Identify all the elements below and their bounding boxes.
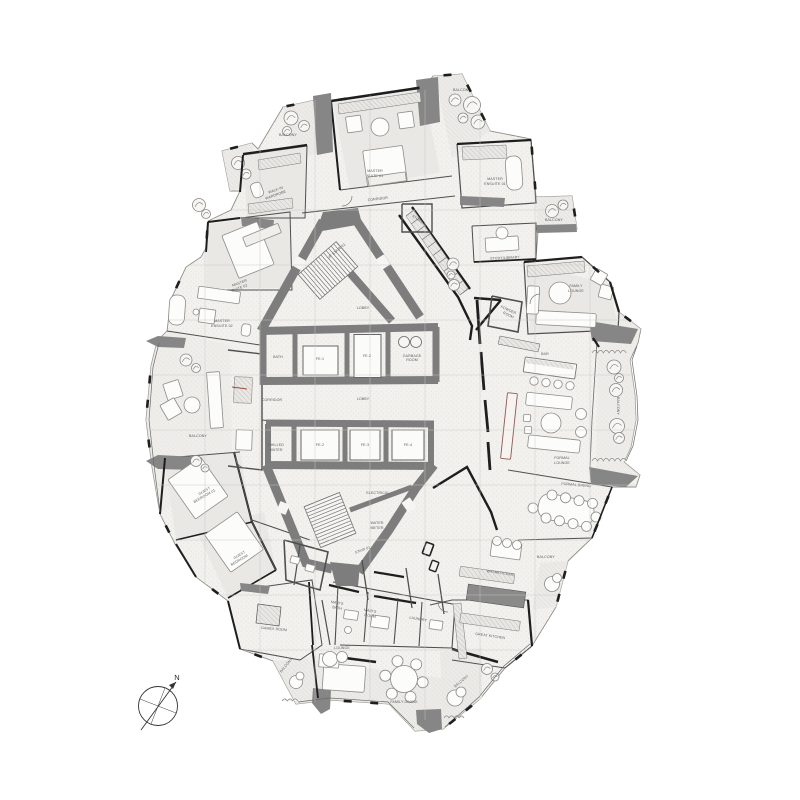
svg-text:WATER: WATER [370,521,383,525]
svg-text:FE-3: FE-3 [361,443,369,447]
svg-text:FE-2: FE-2 [316,443,324,447]
svg-text:BAR: BAR [541,352,549,356]
svg-text:MASTER: MASTER [487,177,503,181]
svg-text:CHILLED: CHILLED [268,443,284,447]
svg-text:SUITE 01: SUITE 01 [367,174,383,178]
svg-text:FE-4: FE-4 [404,443,412,447]
svg-text:N: N [174,673,180,682]
svg-text:BALCONY: BALCONY [616,397,620,415]
svg-text:BALCONY: BALCONY [537,555,555,559]
svg-text:FAMILY: FAMILY [569,284,583,288]
svg-text:BALCONY: BALCONY [189,434,207,438]
svg-text:BATH: BATH [273,355,283,359]
svg-text:FE-2: FE-2 [363,354,371,358]
svg-text:LOUNGE: LOUNGE [554,461,570,465]
svg-text:ENSUITE 01: ENSUITE 01 [484,182,506,186]
svg-text:CORRIDOR: CORRIDOR [262,398,283,402]
svg-text:MASTER: MASTER [367,169,383,173]
svg-text:FE-1: FE-1 [316,357,324,361]
svg-text:LOUNGE: LOUNGE [334,646,350,650]
svg-text:BALCONY: BALCONY [279,133,297,137]
svg-text:FORMAL: FORMAL [554,456,570,460]
svg-text:ELECTRICAL: ELECTRICAL [366,491,389,495]
svg-text:BALCONY: BALCONY [545,218,563,222]
svg-text:METER: METER [370,526,383,530]
svg-text:WATER: WATER [269,448,282,452]
svg-text:MASTER: MASTER [214,319,230,323]
svg-text:LOBBY: LOBBY [357,306,370,310]
svg-text:FAMILY DINING: FAMILY DINING [390,700,417,704]
svg-text:LOBBY: LOBBY [357,397,370,401]
svg-text:ENSUITE 02: ENSUITE 02 [211,324,233,328]
svg-text:ROOM: ROOM [406,358,418,362]
svg-text:LOUNGE: LOUNGE [568,289,584,293]
